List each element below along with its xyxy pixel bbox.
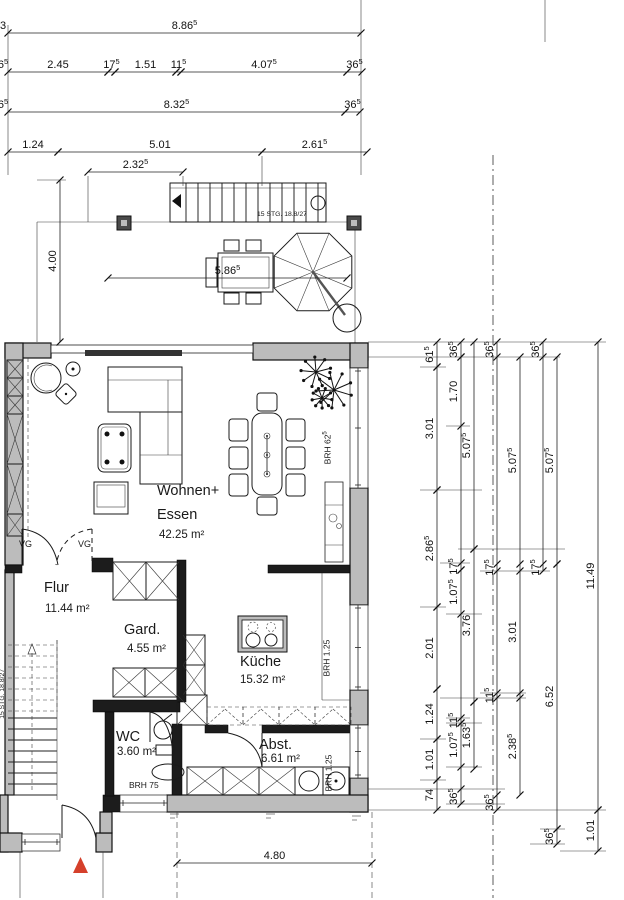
- sofa: [108, 367, 182, 412]
- interior-wall: [172, 724, 182, 795]
- dimension-label: 365: [528, 341, 542, 357]
- doors: [22, 529, 262, 838]
- dimension-chains: 8.86532.451751.511154.075365658.32536565…: [0, 18, 602, 867]
- dimension-label: 11.49: [585, 563, 597, 590]
- dimension-label: 65: [0, 97, 8, 111]
- dimension-label: 1.075: [446, 579, 460, 605]
- armchair: [31, 363, 61, 393]
- brh-annotation-living: BRH 625: [323, 431, 332, 464]
- site-bottom: [20, 812, 372, 898]
- dining-chair: [229, 419, 248, 441]
- dimension-label: 1.01: [424, 749, 436, 770]
- brh-annotation-abst: BRH 1.25: [325, 755, 334, 792]
- room-label-wc: WC: [116, 730, 140, 745]
- dining-chair: [286, 447, 305, 469]
- plant: [299, 355, 352, 409]
- dimension-label: 175: [528, 559, 542, 575]
- ottoman: [94, 482, 128, 514]
- dimension-label: 1.24: [424, 703, 436, 724]
- dimension-label: 115: [482, 688, 496, 704]
- dimension-label: 365: [446, 788, 460, 804]
- interior-wall: [268, 565, 350, 573]
- dimension-label: 65: [0, 57, 8, 71]
- door-glazing-label-2: VG: [78, 540, 91, 549]
- room-area-kueche: 15.32 m²: [240, 675, 285, 687]
- upper-terrace: [37, 216, 361, 343]
- interior-wall: [93, 700, 180, 712]
- interior-stair: [8, 640, 57, 800]
- room-label-wohnen-line2: Essen: [157, 508, 197, 523]
- dimension-label: 4.00: [47, 250, 59, 271]
- room-area-gard: 4.55 m²: [127, 644, 166, 656]
- dimension-label: 2.385: [505, 734, 519, 760]
- dimension-label: 3: [0, 20, 6, 32]
- terrace-chair: [224, 240, 239, 251]
- dimension-label: 1.075: [446, 732, 460, 758]
- terrace-door: [51, 345, 253, 356]
- floor-plan-drawing: 8.86532.451751.511154.075365658.32536565…: [0, 0, 624, 900]
- dining-chair: [257, 497, 277, 515]
- dimension-label: 2.865: [422, 536, 436, 562]
- room-label-wohnen-line1: Wohnen+: [157, 484, 219, 499]
- terrace-chair: [246, 240, 261, 251]
- dimension-label: 175: [103, 57, 119, 71]
- stair-direction-arrow: [172, 194, 181, 208]
- dimension-label: 1.70: [448, 381, 460, 402]
- dining-set: [229, 393, 305, 515]
- dimension-label: 2.45: [47, 59, 68, 71]
- dimension-label: 3.01: [507, 621, 519, 642]
- exterior-walls: [0, 343, 368, 852]
- dimension-label: 175: [482, 559, 496, 575]
- appliances: [295, 767, 349, 795]
- dimension-label: 3.76: [461, 615, 473, 636]
- room-label-kueche: Küche: [240, 655, 281, 670]
- coffee-table: [98, 424, 131, 472]
- terrace-chair: [246, 293, 261, 304]
- dimension-label: 2.325: [123, 157, 149, 171]
- dimension-label: 3.01: [424, 418, 436, 439]
- room-area-wohnen: 42.25 m²: [159, 530, 204, 542]
- dimension-label: 2.01: [424, 637, 436, 658]
- dimension-label: 5.075: [542, 448, 556, 474]
- dimension-label: 4.80: [264, 850, 285, 862]
- dimension-label: 365: [482, 794, 496, 810]
- dimension-label: 8.325: [164, 97, 190, 111]
- interior-wall: [5, 565, 22, 573]
- entrance-door: [62, 805, 96, 838]
- dining-chair: [229, 447, 248, 469]
- abst-door: [228, 733, 262, 767]
- dimension-label: 5.075: [459, 433, 473, 459]
- dimension-label: 5.075: [505, 448, 519, 474]
- washer: [299, 771, 319, 791]
- interior-wall: [105, 712, 114, 796]
- dimension-label: 365: [344, 97, 360, 111]
- terrace-chair: [224, 293, 239, 304]
- room-label-abst: Abst.: [259, 738, 292, 753]
- door-glazing-label-1: VG: [19, 540, 32, 549]
- interior-wall: [103, 795, 120, 812]
- brh-annotation-kitchen: BRH 1.25: [323, 640, 332, 677]
- sliding-door-leaf: [85, 350, 182, 356]
- interior-wall: [262, 725, 350, 733]
- dimension-label: 365: [346, 57, 362, 71]
- interior-wall: [177, 560, 186, 702]
- dimension-label: 8.865: [172, 18, 198, 32]
- dimension-label: 6.52: [544, 686, 556, 707]
- entrance-marker: [73, 857, 88, 873]
- dimension-label: 175: [446, 558, 460, 574]
- dimension-label: 4.075: [251, 57, 277, 71]
- dimension-label: 1.24: [22, 139, 43, 151]
- dimension-label: 1.01: [585, 820, 597, 841]
- dining-chair: [286, 419, 305, 441]
- dining-chair: [257, 393, 277, 411]
- room-label-gard: Gard.: [124, 623, 160, 638]
- parasol: [274, 233, 361, 332]
- kitchen-fixtures: [207, 482, 351, 725]
- dimension-label: 615: [422, 346, 436, 362]
- stair-label-exterior: 15 STG. 18.8/27: [257, 212, 307, 219]
- dimension-label: 2.615: [302, 137, 328, 151]
- dimension-label: 365: [542, 828, 556, 844]
- dining-chair: [229, 474, 248, 496]
- dimension-label: 1.51: [135, 59, 156, 71]
- dimension-label: 5.01: [149, 139, 170, 151]
- interior-wall: [205, 725, 228, 733]
- dimension-label: 1.635: [459, 723, 473, 749]
- dimension-label: 365: [482, 341, 496, 357]
- dimension-label: 5.865: [215, 263, 241, 277]
- room-area-flur: 11.44 m²: [45, 604, 90, 616]
- room-area-abst: 6.61 m²: [261, 754, 300, 766]
- room-area-wc: 3.60 m²: [117, 747, 156, 759]
- brh-annotation-wc: BRH 75: [129, 781, 159, 790]
- interior-wall: [92, 558, 113, 572]
- dimension-label: 74: [424, 789, 436, 801]
- wash-basin: [154, 721, 172, 739]
- dining-chair: [286, 474, 305, 496]
- stair-label-interior: 15 STG. 18.8/27: [0, 669, 7, 719]
- room-label-flur: Flur: [44, 581, 69, 596]
- floor-plan-canvas: 8.86532.451751.511154.075365658.32536565…: [0, 0, 624, 900]
- dimension-label: 365: [446, 341, 460, 357]
